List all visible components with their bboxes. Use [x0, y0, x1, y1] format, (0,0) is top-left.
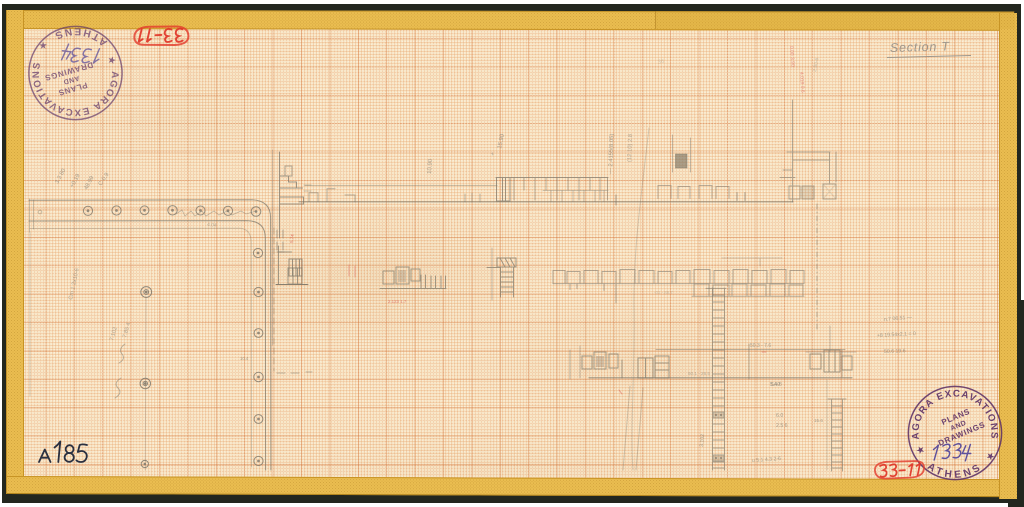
svg-text:Section T: Section T — [890, 39, 951, 55]
